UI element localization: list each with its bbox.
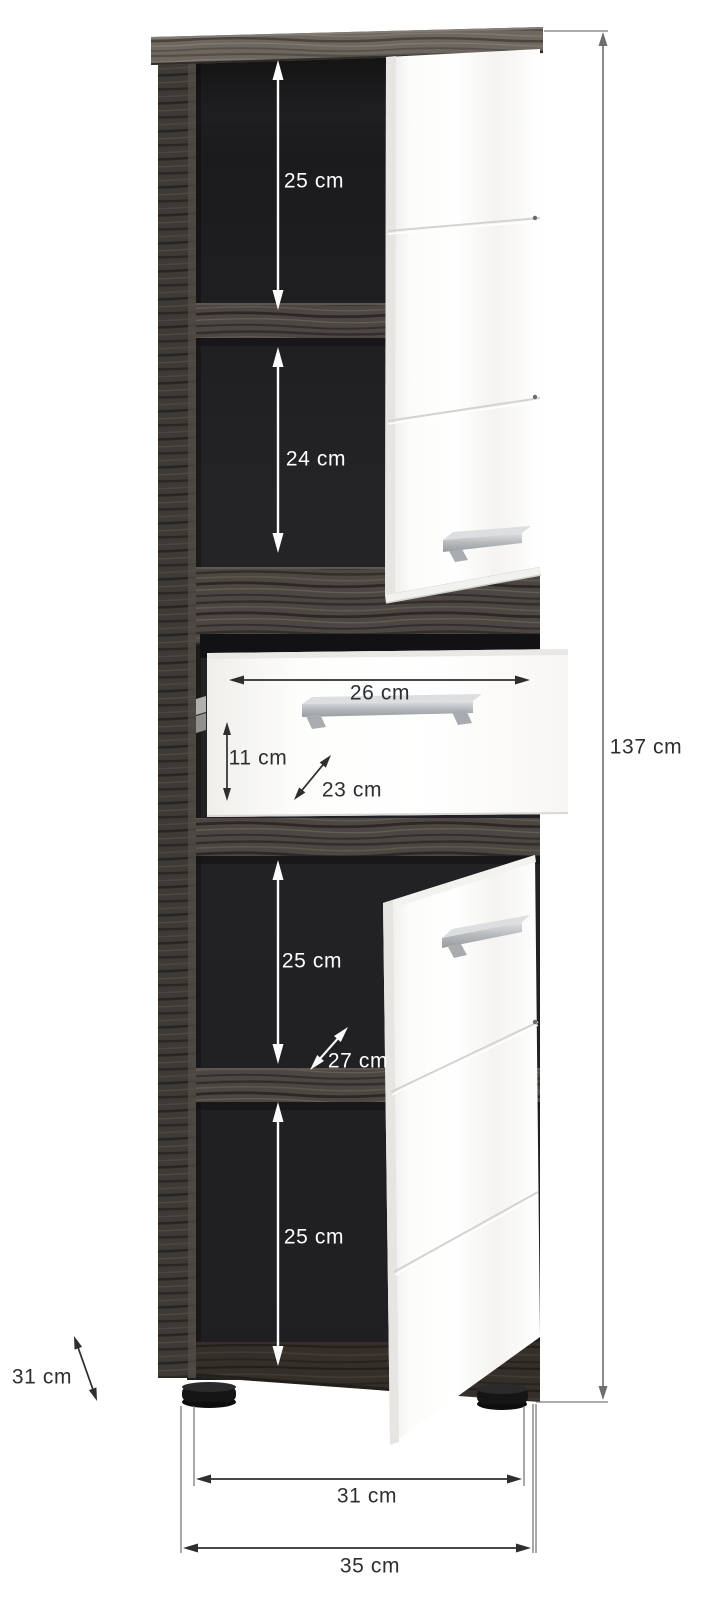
door-screw <box>533 395 537 399</box>
left-side-panel <box>158 48 196 1378</box>
dim-body-depth: 31 cm <box>12 1367 72 1388</box>
dim-second-compartment-height: 24 cm <box>286 449 346 470</box>
dim-drawer-inner-width: 26 cm <box>350 683 410 704</box>
drawer-runner <box>196 696 206 715</box>
door-screw <box>533 1020 537 1024</box>
dim-drawer-depth: 23 cm <box>322 780 382 801</box>
drawer-front <box>207 649 568 817</box>
product-dimension-diagram: 25 cm 24 cm 26 cm 11 cm 23 cm 137 cm 25 … <box>0 0 719 1600</box>
dim-shelf-depth: 27 cm <box>328 1051 388 1072</box>
band-below-drawer <box>186 818 540 856</box>
upper-door <box>385 49 541 603</box>
dim-feet-distance: 31 cm <box>337 1486 397 1507</box>
dim-top-compartment-height: 25 cm <box>284 171 344 192</box>
dim-third-compartment-height: 25 cm <box>282 951 342 972</box>
dim-total-width: 35 cm <box>340 1556 400 1577</box>
dim-bottom-compartment-height: 25 cm <box>284 1227 344 1248</box>
door-screw <box>533 216 537 220</box>
dim-drawer-front-height: 11 cm <box>229 748 288 769</box>
dim-total-height: 137 cm <box>610 737 682 758</box>
